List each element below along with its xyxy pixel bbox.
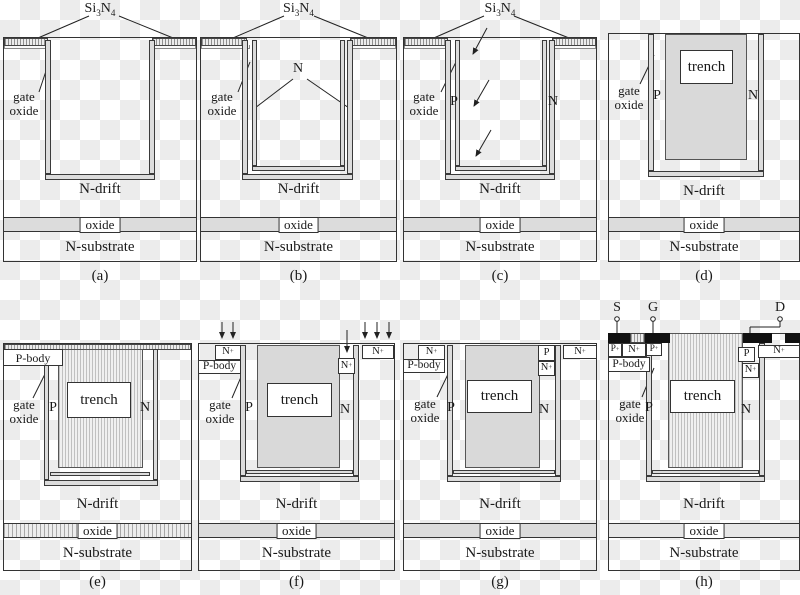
gate-oxide-label: gateoxide xyxy=(403,90,445,118)
panel-b: Si3N4 N gateoxide N-drift oxide N-substr… xyxy=(200,0,397,298)
p-region-label: P xyxy=(447,94,461,109)
p-plus-box-gate: P+ xyxy=(646,343,662,356)
p-body-box: P-body xyxy=(3,349,63,366)
n-drift-label: N-drift xyxy=(3,496,192,512)
oxide-band: oxide xyxy=(4,217,196,232)
n-plus-box-trench-right: N+ xyxy=(742,363,759,378)
p-plus-box-left: P+ xyxy=(608,343,622,357)
trench-wall-bottom xyxy=(44,480,158,486)
oxide-band: oxide xyxy=(404,523,596,538)
p-box-trench-right: P xyxy=(738,347,755,362)
panel-h: S G D P+ N+ P+ P-body P N+ N+ tr xyxy=(608,300,800,595)
panel-e: P-body trench P N gateoxide N-drift oxid… xyxy=(3,300,192,595)
caption-d: (d) xyxy=(608,268,800,284)
n-region-label: N xyxy=(739,402,753,417)
nitride-cap-left xyxy=(404,38,448,46)
n-plus-box-left: N+ xyxy=(215,345,241,360)
n-plus-box-left: N+ xyxy=(622,343,646,357)
n-substrate-label: N-substrate xyxy=(608,239,800,255)
oxide-liner-bottom xyxy=(252,166,345,171)
n-drift-label: N-drift xyxy=(200,181,397,197)
p-body-box: P-body xyxy=(198,360,241,374)
oxide-liner-bottom xyxy=(50,472,150,476)
nitride-cap-left xyxy=(201,38,247,46)
trench-wall-right xyxy=(153,349,158,480)
oxide-band: oxide xyxy=(199,523,394,538)
n-doping-label: N xyxy=(286,61,310,76)
trench-label-box: trench xyxy=(467,380,532,413)
n-drift-label: N-drift xyxy=(403,496,597,512)
panel-c: Si3N4 P N gateoxide N-drift oxide N-subs… xyxy=(403,0,597,298)
n-substrate-label: N-substrate xyxy=(200,239,397,255)
trench-wall-bottom xyxy=(240,476,359,482)
oxide-label: oxide xyxy=(684,523,725,539)
p-body-box: P-body xyxy=(403,359,445,373)
process-flow-figure: Si3N4 gateoxide N-drift oxide N-substrat… xyxy=(0,0,800,595)
trench-wall-right xyxy=(759,343,765,476)
n-drift-label: N-drift xyxy=(198,496,395,512)
oxide-label: oxide xyxy=(278,217,319,233)
panel-f: N+ P-body N+ N+ trench P N gateoxide N-d… xyxy=(198,300,395,595)
oxide-liner-bottom xyxy=(453,470,555,474)
source-terminal-label: S xyxy=(609,300,625,315)
si3n4-label: Si3N4 xyxy=(200,1,397,19)
oxide-label: oxide xyxy=(77,523,118,539)
trench-label-box: trench xyxy=(267,383,332,417)
oxide-label: oxide xyxy=(80,217,121,233)
trench-wall-left xyxy=(45,40,51,174)
trench-label-box: trench xyxy=(670,380,735,413)
n-plus-box-far-right: N+ xyxy=(362,345,394,359)
p-box-trench-right: P xyxy=(538,345,555,361)
n-plus-box-trench-right: N+ xyxy=(538,361,555,376)
gate-oxide-label: gateoxide xyxy=(3,90,45,118)
p-body-box: P-body xyxy=(608,357,650,372)
nitride-cap-right xyxy=(552,38,596,46)
gate-oxide-label: gateoxide xyxy=(200,90,244,118)
trench-wall-bottom xyxy=(447,476,561,482)
oxide-liner-bottom xyxy=(455,166,547,171)
caption-e: (e) xyxy=(3,574,192,590)
source-metal-contact xyxy=(608,333,630,343)
p-region-label: P xyxy=(46,400,60,415)
n-plus-box-far-right: N+ xyxy=(563,345,597,359)
n-drift-label: N-drift xyxy=(608,183,800,199)
p-region-label: P xyxy=(444,400,458,415)
oxide-band: oxide xyxy=(404,217,596,232)
gate-oxide-label: gateoxide xyxy=(610,397,650,425)
oxide-label: oxide xyxy=(684,217,725,233)
oxide-liner-left xyxy=(252,40,257,166)
gate-oxide-label: gateoxide xyxy=(405,397,445,425)
oxide-band: oxide xyxy=(609,217,799,232)
p-region-label: P xyxy=(650,88,664,103)
n-region-label: N xyxy=(746,88,760,103)
trench-label-box: trench xyxy=(67,382,131,418)
caption-c: (c) xyxy=(403,268,597,284)
trench-wall-bottom xyxy=(648,171,764,177)
gate-oxide-label: gateoxide xyxy=(200,398,240,426)
oxide-label: oxide xyxy=(480,217,521,233)
n-region-label: N xyxy=(537,402,551,417)
caption-h: (h) xyxy=(608,574,800,590)
gate-metal-contact xyxy=(645,333,670,343)
trench-label-box: trench xyxy=(680,50,733,84)
caption-f: (f) xyxy=(198,574,395,590)
trench-wall-right xyxy=(555,345,561,476)
gate-oxide-label: gateoxide xyxy=(3,398,45,426)
gate-oxide-label: gateoxide xyxy=(608,84,650,112)
n-drift-label: N-drift xyxy=(403,181,597,197)
oxide-band: oxide xyxy=(4,523,191,538)
panel-d: trench P N gateoxide N-drift oxide N-sub… xyxy=(608,0,800,298)
gate-terminal-label: G xyxy=(645,300,661,315)
trench-wall-right xyxy=(347,40,353,174)
n-plus-box-far-right: N+ xyxy=(758,345,800,358)
n-substrate-label: N-substrate xyxy=(608,545,800,561)
n-substrate-label: N-substrate xyxy=(403,545,597,561)
n-region-label: N xyxy=(545,94,561,109)
oxide-label: oxide xyxy=(276,523,317,539)
trench-wall-right xyxy=(149,40,155,174)
surface-oxide-gap xyxy=(630,333,645,343)
trench-wall-bottom xyxy=(45,174,155,180)
n-region-label: N xyxy=(138,400,152,415)
caption-a: (a) xyxy=(3,268,197,284)
oxide-label: oxide xyxy=(480,523,521,539)
trench-wall-bottom xyxy=(646,476,765,482)
panel-a: Si3N4 gateoxide N-drift oxide N-substrat… xyxy=(3,0,197,298)
trench-wall-bottom xyxy=(445,174,555,180)
oxide-liner-right xyxy=(340,40,345,166)
oxide-liner-bottom xyxy=(652,470,759,474)
trench-wall-bottom xyxy=(242,174,353,180)
n-plus-box-left: N+ xyxy=(418,345,445,360)
right-metal-contact xyxy=(785,333,800,343)
p-region-label: P xyxy=(242,400,256,415)
n-plus-box-trench-right: N+ xyxy=(338,358,355,374)
nitride-cap-right xyxy=(152,38,196,46)
si3n4-label: Si3N4 xyxy=(3,1,197,19)
caption-g: (g) xyxy=(403,574,597,590)
drain-metal-contact xyxy=(743,333,772,343)
n-drift-label: N-drift xyxy=(3,181,197,197)
drain-terminal-label: D xyxy=(772,300,788,315)
si3n4-label: Si3N4 xyxy=(403,1,597,19)
nitride-cap-right xyxy=(350,38,396,46)
n-substrate-label: N-substrate xyxy=(3,545,192,561)
n-region-label: N xyxy=(338,402,352,417)
oxide-band: oxide xyxy=(201,217,396,232)
oxide-liner-bottom xyxy=(246,470,353,474)
n-substrate-label: N-substrate xyxy=(198,545,395,561)
nitride-cap-left xyxy=(4,38,48,46)
caption-b: (b) xyxy=(200,268,397,284)
n-substrate-label: N-substrate xyxy=(3,239,197,255)
panel-g: N+ P-body P N+ N+ trench P N gateoxide N… xyxy=(403,300,597,595)
n-substrate-label: N-substrate xyxy=(403,239,597,255)
n-drift-label: N-drift xyxy=(608,496,800,512)
oxide-band: oxide xyxy=(609,523,799,538)
